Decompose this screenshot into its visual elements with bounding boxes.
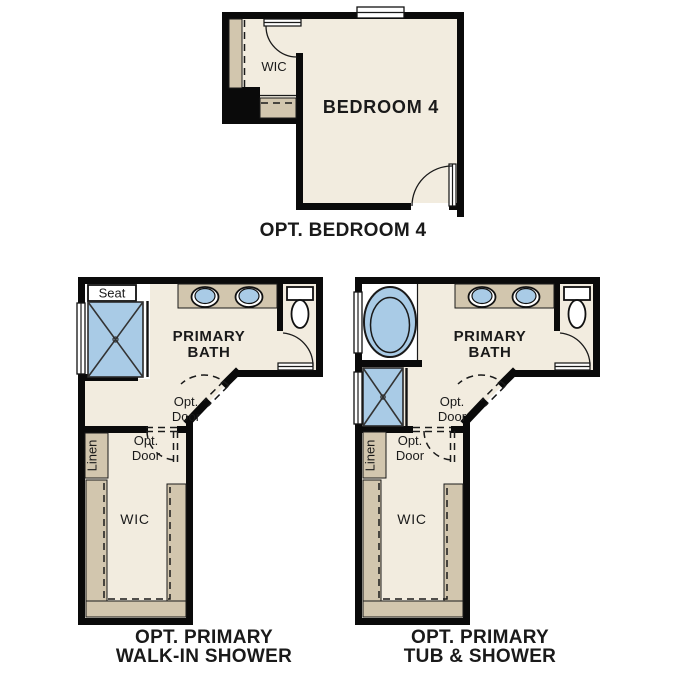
linen-label: Linen (363, 440, 378, 472)
toilet-bowl (569, 300, 586, 328)
wall-segment (78, 426, 148, 433)
wall-segment (78, 618, 193, 625)
vanity-counter (178, 284, 277, 308)
toilet-tank (564, 287, 590, 300)
wic-label: WIC (261, 59, 286, 74)
window (77, 303, 85, 374)
plan-caption: WALK-IN SHOWER (116, 646, 292, 667)
linen-cabinet: Linen (85, 433, 109, 478)
window (354, 292, 362, 353)
window (357, 7, 404, 18)
floorplan-sheet: WIC BEDROOM 4 OPT. BEDROOM 4 (0, 0, 687, 687)
wall-segment (355, 360, 422, 367)
wall-segment (316, 277, 323, 377)
plan-opt-tub-shower: Linen PRIMARY BATH Opt. Door Opt. Door W… (354, 277, 600, 667)
seat-label: Seat (99, 286, 126, 301)
wic-label: WIC (397, 511, 427, 527)
toilet-bowl (292, 300, 309, 328)
wall-segment (186, 416, 193, 625)
sink (192, 287, 219, 307)
shower (363, 368, 407, 426)
opt-door-label: Door (438, 409, 467, 424)
opt-door-label: Opt. (174, 394, 199, 409)
wall-segment (277, 284, 283, 331)
bath-label: BATH (188, 344, 231, 361)
opt-door-label: Opt. (398, 433, 423, 448)
plan-caption: OPT. PRIMARY (135, 627, 273, 648)
opt-door-label: Door (132, 448, 161, 463)
plan-caption: TUB & SHOWER (404, 646, 556, 667)
wall-segment (222, 12, 464, 19)
plan-opt-walkin-shower: Seat Linen (77, 277, 323, 667)
wall-segment (463, 416, 470, 625)
door-opening (411, 203, 449, 210)
wall-segment (234, 370, 323, 377)
sink (236, 287, 263, 307)
wall-segment (355, 618, 470, 625)
bath-label: PRIMARY (454, 328, 527, 345)
wall-segment (355, 277, 600, 284)
wall-segment (457, 12, 464, 217)
plan-caption: OPT. BEDROOM 4 (260, 220, 427, 241)
bath-label: BATH (469, 344, 512, 361)
bedroom-label: BEDROOM 4 (323, 97, 439, 117)
toilet-tank (287, 287, 313, 300)
vanity-counter (455, 284, 554, 308)
opt-door-label: Opt. (134, 433, 159, 448)
opt-door-label: Door (396, 448, 425, 463)
wall-segment (554, 284, 560, 331)
wall-segment (593, 277, 600, 377)
wall-segment (511, 370, 600, 377)
floorplan-canvas: WIC BEDROOM 4 OPT. BEDROOM 4 (0, 0, 687, 687)
bath-label: PRIMARY (173, 328, 246, 345)
linen-label: Linen (85, 440, 100, 472)
sink (469, 287, 496, 307)
wall-segment (78, 277, 323, 284)
linen-cabinet: Linen (363, 432, 387, 478)
bathtub (364, 287, 416, 357)
plan-opt-bedroom4: WIC BEDROOM 4 OPT. BEDROOM 4 (222, 7, 464, 241)
sink (513, 287, 540, 307)
plan-caption: OPT. PRIMARY (411, 627, 549, 648)
wall-segment (296, 53, 303, 210)
opt-door-label: Door (172, 409, 201, 424)
wic-label: WIC (120, 511, 150, 527)
window (354, 372, 362, 424)
wall-corner-block (222, 87, 260, 124)
opt-door-label: Opt. (440, 394, 465, 409)
